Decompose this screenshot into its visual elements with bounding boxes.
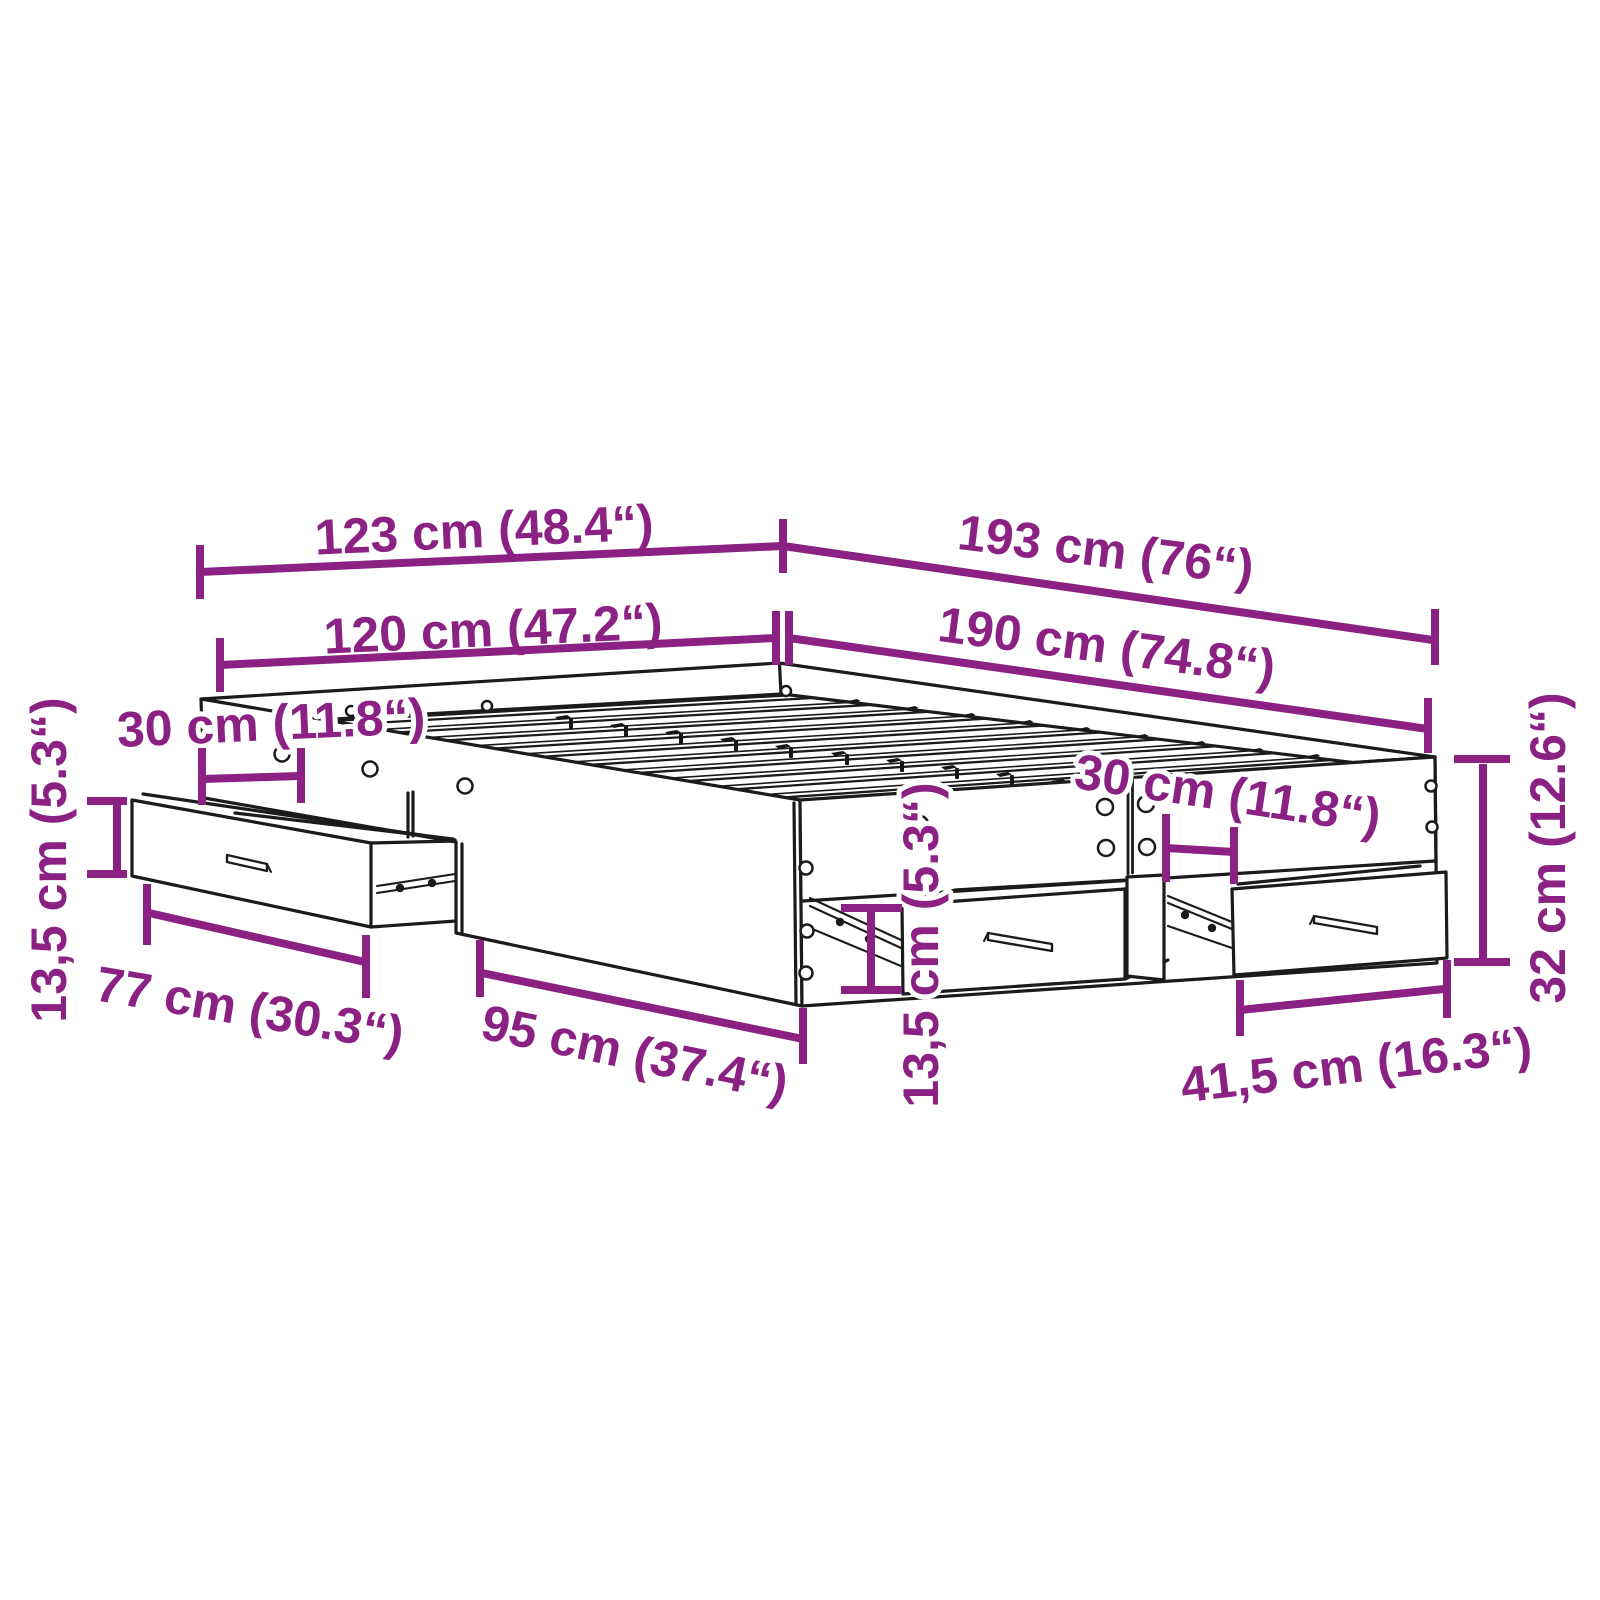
svg-text:13,5 cm (5.3“): 13,5 cm (5.3“)	[21, 697, 77, 1022]
svg-text:13,5 cm (5.3“): 13,5 cm (5.3“)	[893, 782, 949, 1107]
svg-text:32 cm (12.6“): 32 cm (12.6“)	[1520, 692, 1576, 1003]
